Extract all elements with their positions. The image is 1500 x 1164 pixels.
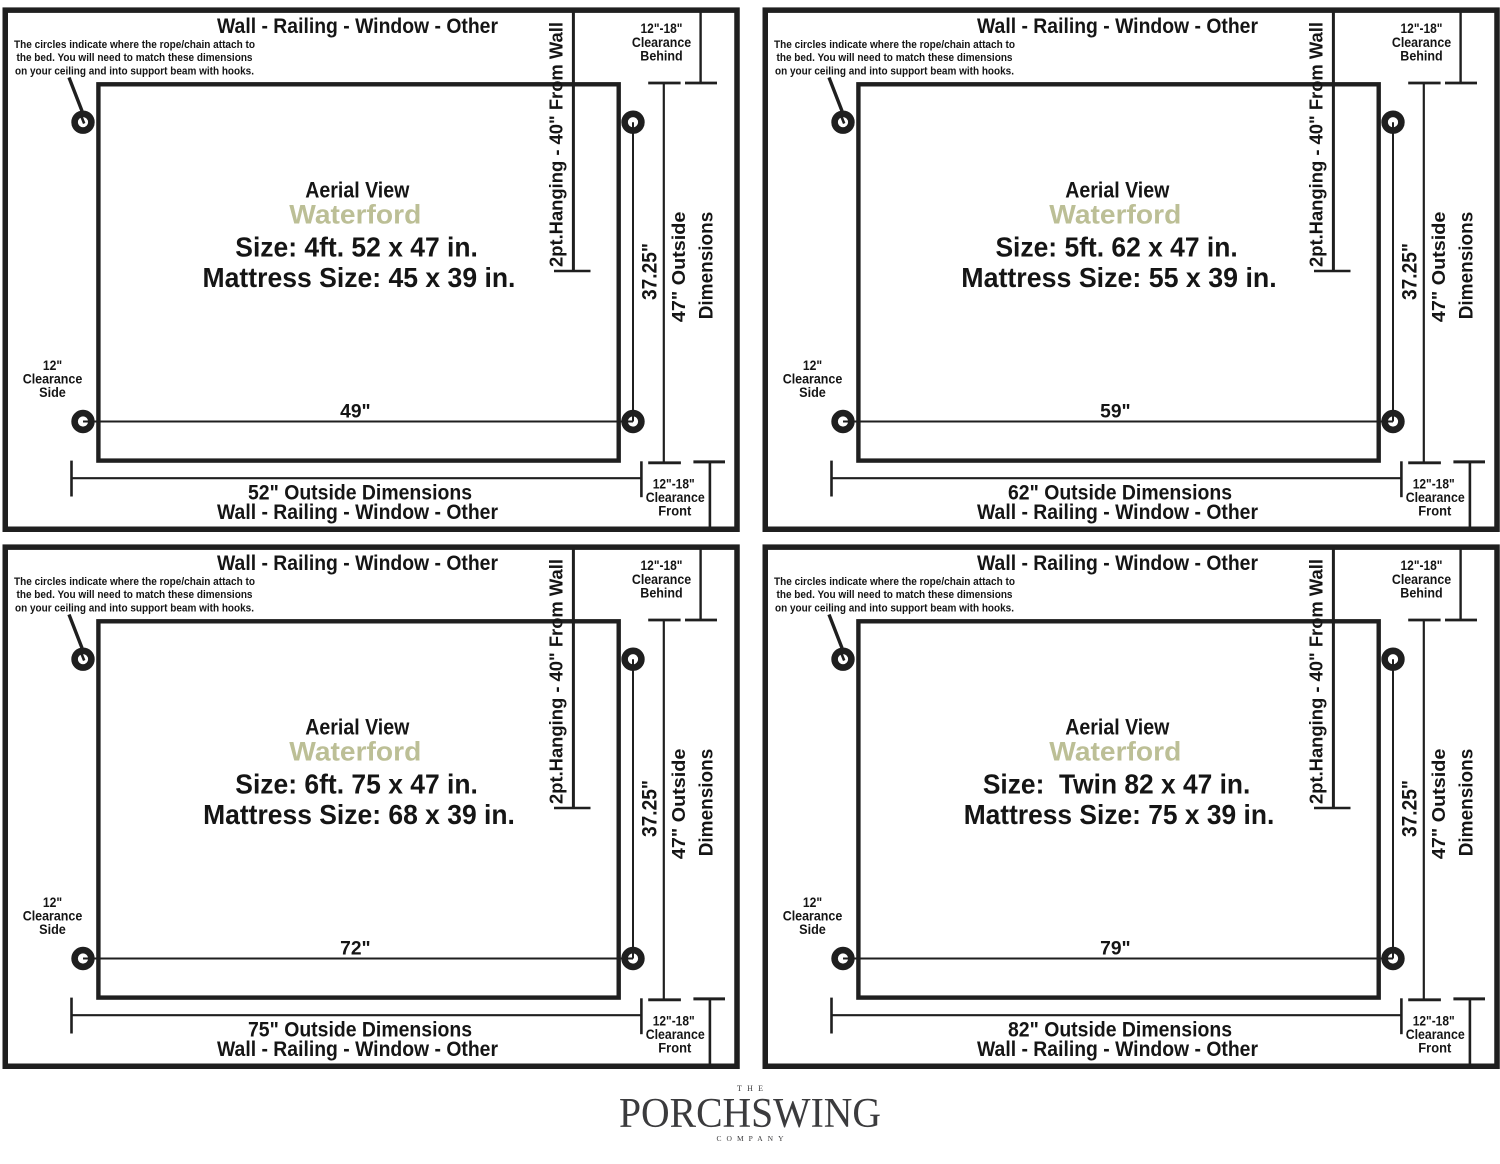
svg-text:Size: Twin 82 x 47 in.: Size: Twin 82 x 47 in. — [983, 768, 1251, 799]
svg-text:82" Outside Dimensions: 82" Outside Dimensions — [1008, 1018, 1232, 1041]
svg-text:Mattress Size: 55 x 39 in.: Mattress Size: 55 x 39 in. — [961, 262, 1276, 293]
svg-text:75" Outside Dimensions: 75" Outside Dimensions — [248, 1018, 472, 1041]
svg-text:Size: 4ft. 52 x 47 in.: Size: 4ft. 52 x 47 in. — [235, 231, 478, 262]
svg-text:Mattress Size: 68 x 39 in.: Mattress Size: 68 x 39 in. — [203, 799, 515, 830]
svg-text:52" Outside Dimensions: 52" Outside Dimensions — [248, 481, 472, 504]
svg-text:Size: 6ft. 75 x 47 in.: Size: 6ft. 75 x 47 in. — [235, 768, 478, 799]
svg-text:49": 49" — [340, 401, 371, 423]
svg-text:PORCHSWING: PORCHSWING — [619, 1091, 881, 1137]
svg-text:59": 59" — [1100, 401, 1131, 423]
svg-text:62" Outside Dimensions: 62" Outside Dimensions — [1008, 481, 1232, 504]
svg-text:72": 72" — [340, 938, 371, 960]
svg-text:Mattress Size: 45 x 39 in.: Mattress Size: 45 x 39 in. — [203, 262, 516, 293]
svg-text:Mattress Size: 75 x 39 in.: Mattress Size: 75 x 39 in. — [964, 799, 1275, 830]
svg-text:Size: 5ft. 62 x 47 in.: Size: 5ft. 62 x 47 in. — [995, 231, 1237, 262]
svg-text:79": 79" — [1100, 938, 1131, 960]
